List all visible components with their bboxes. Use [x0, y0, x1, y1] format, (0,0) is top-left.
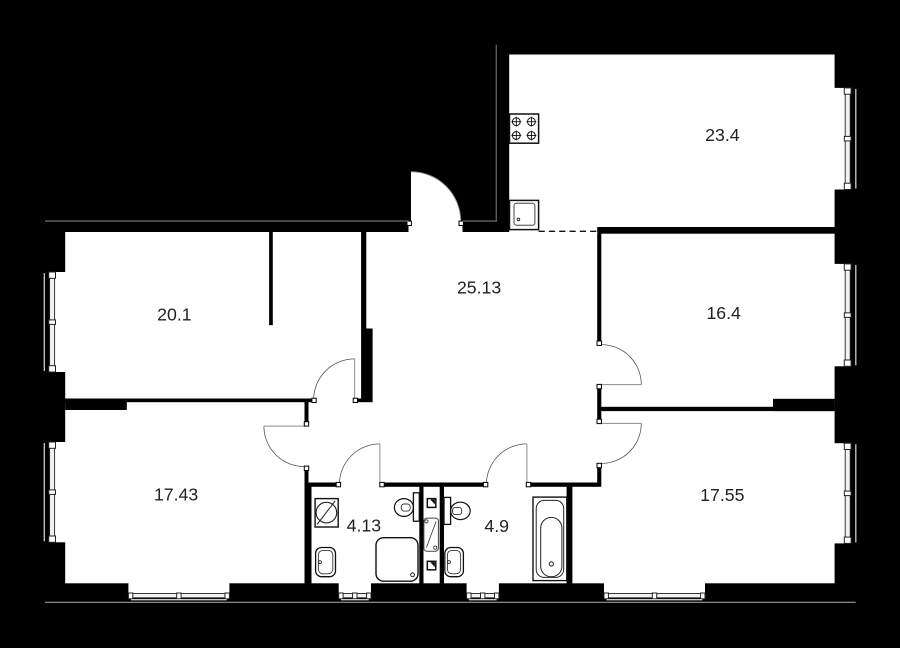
svg-text:16.4: 16.4	[706, 303, 741, 323]
svg-text:25.13: 25.13	[457, 277, 501, 297]
svg-text:23.4: 23.4	[705, 125, 740, 145]
svg-text:4.13: 4.13	[347, 516, 382, 536]
svg-text:17.43: 17.43	[154, 485, 198, 505]
svg-text:17.55: 17.55	[700, 485, 744, 505]
svg-text:20.1: 20.1	[157, 304, 191, 324]
svg-text:4.9: 4.9	[484, 516, 509, 536]
